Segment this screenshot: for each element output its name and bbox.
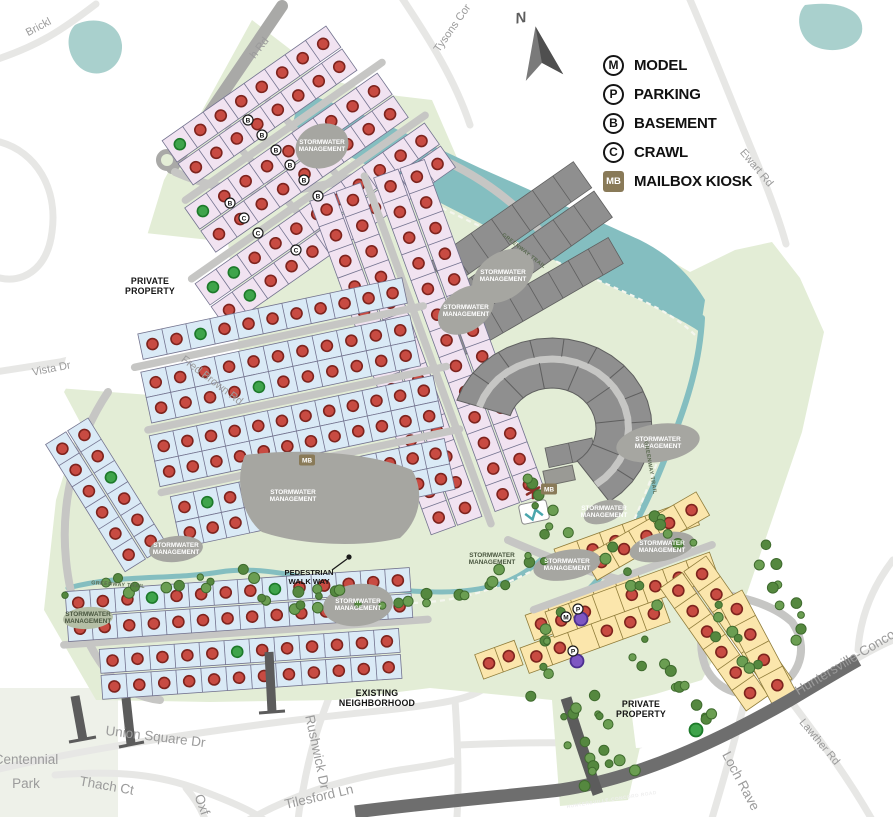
tree-icon xyxy=(249,573,260,584)
svg-text:B: B xyxy=(316,193,321,200)
map-legend: M MODEL P PARKING B BASEMENT C CRAWL MB … xyxy=(603,54,752,199)
tree-icon xyxy=(540,624,551,635)
tree-icon xyxy=(579,781,590,792)
label-stormwater: STORMWATERMANAGEMENT xyxy=(65,611,112,625)
tree-icon xyxy=(174,580,184,590)
tree-icon xyxy=(637,661,647,671)
pond-northwest xyxy=(69,21,122,74)
tree-icon xyxy=(532,503,538,509)
tree-icon xyxy=(796,624,806,634)
svg-text:B: B xyxy=(246,117,251,124)
tree-icon xyxy=(706,709,716,719)
tree-icon xyxy=(487,576,498,587)
label-stormwater: STORMWATERMANAGEMENT xyxy=(335,598,382,612)
lot-status-dot[interactable] xyxy=(208,674,220,686)
lot-status-dot[interactable] xyxy=(206,648,218,660)
entrance-stub-3 xyxy=(269,652,272,712)
tree-icon xyxy=(629,654,636,661)
lot-status-dot[interactable] xyxy=(306,641,318,653)
label-stormwater: STORMWATERMANAGEMENT xyxy=(153,542,200,556)
svg-text:PRIVATEPROPERTY: PRIVATEPROPERTY xyxy=(616,699,666,719)
legend-item-parking: P PARKING xyxy=(603,83,752,105)
tree-icon xyxy=(596,713,603,720)
tree-icon xyxy=(642,636,648,642)
lot-status-dot[interactable] xyxy=(157,651,169,663)
svg-text:STORMWATERMANAGEMENT: STORMWATERMANAGEMENT xyxy=(335,598,382,612)
svg-text:STORMWATERMANAGEMENT: STORMWATERMANAGEMENT xyxy=(299,139,346,153)
lot-status-dot[interactable] xyxy=(333,665,345,677)
lot-status-dot[interactable] xyxy=(148,618,160,630)
lot-status-dot[interactable] xyxy=(575,613,588,626)
tree-icon xyxy=(744,663,755,674)
svg-text:C: C xyxy=(294,247,299,254)
lot-status-dot[interactable] xyxy=(331,639,343,651)
tree-icon xyxy=(624,568,632,576)
lot-status-dot[interactable] xyxy=(220,587,232,599)
tree-icon xyxy=(635,581,644,590)
label-huntersville-concor: Huntersville-Concor xyxy=(792,624,893,698)
svg-text:STORMWATERMANAGEMENT: STORMWATERMANAGEMENT xyxy=(270,489,317,503)
tree-icon xyxy=(293,586,304,597)
tree-icon xyxy=(798,612,805,619)
lot-status-dot[interactable] xyxy=(244,585,256,597)
pond-northeast xyxy=(799,4,862,50)
tree-icon xyxy=(312,602,323,613)
tree-icon xyxy=(525,552,531,558)
lot-status-dot[interactable] xyxy=(246,611,258,623)
tree-icon xyxy=(394,598,404,608)
tree-icon xyxy=(197,574,203,580)
tree-icon xyxy=(605,760,613,768)
tree-icon xyxy=(791,635,801,645)
tree-icon xyxy=(663,530,672,539)
svg-text:P: P xyxy=(571,648,576,655)
tree-icon xyxy=(548,505,558,515)
lot-status-dot[interactable] xyxy=(356,637,368,649)
tree-icon xyxy=(734,634,742,642)
label-stormwater: STORMWATERMANAGEMENT xyxy=(480,269,527,283)
tree-icon xyxy=(460,591,469,600)
svg-text:STORMWATERMANAGEMENT: STORMWATERMANAGEMENT xyxy=(639,540,686,554)
svg-text:MB: MB xyxy=(302,458,312,465)
svg-text:PEDESTRIANWALK WAY: PEDESTRIANWALK WAY xyxy=(285,568,334,586)
lot-status-dot[interactable] xyxy=(97,595,109,607)
tree-icon xyxy=(711,632,721,642)
label-stormwater: STORMWATERMANAGEMENT xyxy=(639,540,686,554)
svg-text:STORMWATERMANAGEMENT: STORMWATERMANAGEMENT xyxy=(469,552,516,566)
lot-status-dot[interactable] xyxy=(72,597,84,609)
tree-icon xyxy=(201,583,211,593)
legend-item-basement: B BASEMENT xyxy=(603,112,752,134)
tree-icon xyxy=(761,540,771,550)
svg-text:B: B xyxy=(228,200,233,207)
tree-icon xyxy=(580,737,590,747)
svg-text:P: P xyxy=(576,606,581,613)
tree-icon xyxy=(603,720,613,730)
legend-item-crawl: C CRAWL xyxy=(603,141,752,163)
svg-text:MB: MB xyxy=(544,487,554,494)
tree-icon xyxy=(544,669,554,679)
tree-icon xyxy=(421,588,432,599)
site-plan-map: BBBBBBBCCCMPPMBMB Bricklh RdTysons CorEw… xyxy=(0,0,893,817)
lot-status-dot[interactable] xyxy=(222,613,234,625)
label-stormwater: STORMWATERMANAGEMENT xyxy=(443,304,490,318)
mailbox-kiosk-icon: MB xyxy=(603,171,624,192)
tree-icon xyxy=(589,690,599,700)
lot-status-dot[interactable] xyxy=(197,614,209,626)
tree-icon xyxy=(791,598,802,609)
lot-status-dot[interactable] xyxy=(171,590,183,602)
lot-status-dot[interactable] xyxy=(173,616,185,628)
svg-text:STORMWATERMANAGEMENT: STORMWATERMANAGEMENT xyxy=(544,558,591,572)
tree-icon xyxy=(608,542,618,552)
legend-label: CRAWL xyxy=(634,144,688,161)
tree-icon xyxy=(771,559,782,570)
lot-status-dot[interactable] xyxy=(269,583,281,595)
lot-status-dot[interactable] xyxy=(383,661,395,673)
label-private: PRIVATEPROPERTY xyxy=(125,276,175,296)
tree-icon xyxy=(296,601,305,610)
tree-icon xyxy=(564,742,571,749)
lot-status-dot[interactable] xyxy=(281,642,293,654)
lot-status-dot[interactable] xyxy=(158,677,170,689)
tree-icon xyxy=(630,765,641,776)
svg-text:B: B xyxy=(260,132,265,139)
lot-status-dot[interactable] xyxy=(381,635,393,647)
lot-status-dot[interactable] xyxy=(123,619,135,631)
tree-icon xyxy=(316,593,323,600)
svg-text:C: C xyxy=(256,230,261,237)
tree-icon xyxy=(544,638,550,644)
tree-icon xyxy=(767,582,778,593)
tree-icon xyxy=(546,523,553,530)
svg-text:Huntersville-Concor: Huntersville-Concor xyxy=(792,624,893,698)
lot-status-dot[interactable] xyxy=(183,675,195,687)
legend-label: BASEMENT xyxy=(634,115,717,132)
svg-text:M: M xyxy=(563,614,568,621)
north-arrow: N xyxy=(513,4,563,81)
lot-status-dot[interactable] xyxy=(283,668,295,680)
svg-text:STORMWATERMANAGEMENT: STORMWATERMANAGEMENT xyxy=(65,611,112,625)
legend-label: MODEL xyxy=(634,57,687,74)
svg-text:STORMWATERMANAGEMENT: STORMWATERMANAGEMENT xyxy=(443,304,490,318)
tree-icon xyxy=(600,553,611,564)
lot-status-dot[interactable] xyxy=(132,653,144,665)
svg-text:PRIVATEPROPERTY: PRIVATEPROPERTY xyxy=(125,276,175,296)
tree-icon xyxy=(599,745,609,755)
label-pedestrian: PEDESTRIANWALK WAY xyxy=(285,568,334,586)
tree-icon xyxy=(501,581,510,590)
tree-icon xyxy=(62,592,68,598)
svg-text:STORMWATERMANAGEMENT: STORMWATERMANAGEMENT xyxy=(153,542,200,556)
tree-icon xyxy=(714,612,724,622)
lot-status-dot[interactable] xyxy=(308,667,320,679)
parking-icon: P xyxy=(603,84,624,105)
stormwater-pond xyxy=(240,452,419,544)
lot-status-dot[interactable] xyxy=(358,663,370,675)
lot-status-dot[interactable] xyxy=(146,592,158,604)
tree-icon xyxy=(775,601,784,610)
tree-icon xyxy=(403,596,413,606)
label-tysons-cor: Tysons Cor xyxy=(432,2,474,55)
tree-icon xyxy=(655,519,666,530)
tree-icon xyxy=(614,755,625,766)
lot-status-dot[interactable] xyxy=(233,672,245,684)
legend-item-model: M MODEL xyxy=(603,54,752,76)
basement-icon: B xyxy=(603,113,624,134)
tree-icon xyxy=(754,560,764,570)
svg-text:C: C xyxy=(242,215,247,222)
tree-icon xyxy=(588,767,596,775)
lot-status-dot[interactable] xyxy=(231,646,243,658)
lot-status-dot[interactable] xyxy=(271,609,283,621)
svg-text:STORMWATERMANAGEMENT: STORMWATERMANAGEMENT xyxy=(581,505,628,519)
map-canvas: BBBBBBBCCCMPPMBMB Bricklh RdTysons CorEw… xyxy=(0,0,893,817)
tree-icon xyxy=(691,700,702,711)
tree-icon xyxy=(540,530,550,540)
svg-text:B: B xyxy=(302,177,307,184)
tree-icon xyxy=(680,681,689,690)
lot-status-dot[interactable] xyxy=(181,649,193,661)
label-stormwater: STORMWATERMANAGEMENT xyxy=(635,436,682,450)
svg-text:STORMWATERMANAGEMENT: STORMWATERMANAGEMENT xyxy=(635,436,682,450)
tree-icon xyxy=(238,564,248,574)
lot-status-dot[interactable] xyxy=(107,655,119,667)
tree-icon xyxy=(652,600,663,611)
road-topleft-loop xyxy=(0,142,53,279)
svg-text:Tysons Cor: Tysons Cor xyxy=(432,2,474,55)
label-stormwater: STORMWATERMANAGEMENT xyxy=(299,139,346,153)
svg-text:B: B xyxy=(274,147,279,154)
legend-item-mailbox-kiosk: MB MAILBOX KIOSK xyxy=(603,170,752,192)
tree-icon xyxy=(690,539,697,546)
legend-label: MAILBOX KIOSK xyxy=(634,173,752,190)
tree-icon xyxy=(571,703,581,713)
label-private: PRIVATEPROPERTY xyxy=(616,699,666,719)
tree-icon xyxy=(665,665,676,676)
svg-text:Lawther Rd: Lawther Rd xyxy=(797,717,842,768)
label-lawther-rd: Lawther Rd xyxy=(797,717,842,768)
label-stormwater: STORMWATERMANAGEMENT xyxy=(469,552,516,566)
tree-icon xyxy=(258,594,266,602)
lot-status-dot[interactable] xyxy=(392,575,404,587)
tree-icon xyxy=(563,528,573,538)
lot-status-dot[interactable] xyxy=(690,724,703,737)
label-stormwater: STORMWATERMANAGEMENT xyxy=(581,505,628,519)
tree-icon xyxy=(161,582,172,593)
legend-label: PARKING xyxy=(634,86,701,103)
crawl-icon: C xyxy=(603,142,624,163)
label-stormwater: STORMWATERMANAGEMENT xyxy=(270,489,317,503)
tree-icon xyxy=(526,691,536,701)
tree-icon xyxy=(423,599,431,607)
north-label: N xyxy=(514,9,529,28)
lot-status-dot[interactable] xyxy=(133,679,145,691)
tree-icon xyxy=(715,601,722,608)
model-icon: M xyxy=(603,55,624,76)
lot-status-dot[interactable] xyxy=(108,681,120,693)
svg-text:B: B xyxy=(288,162,293,169)
tree-icon xyxy=(523,474,532,483)
tree-icon xyxy=(334,585,344,595)
tree-icon xyxy=(561,714,567,720)
svg-text:STORMWATERMANAGEMENT: STORMWATERMANAGEMENT xyxy=(480,269,527,283)
label-stormwater: STORMWATERMANAGEMENT xyxy=(544,558,591,572)
